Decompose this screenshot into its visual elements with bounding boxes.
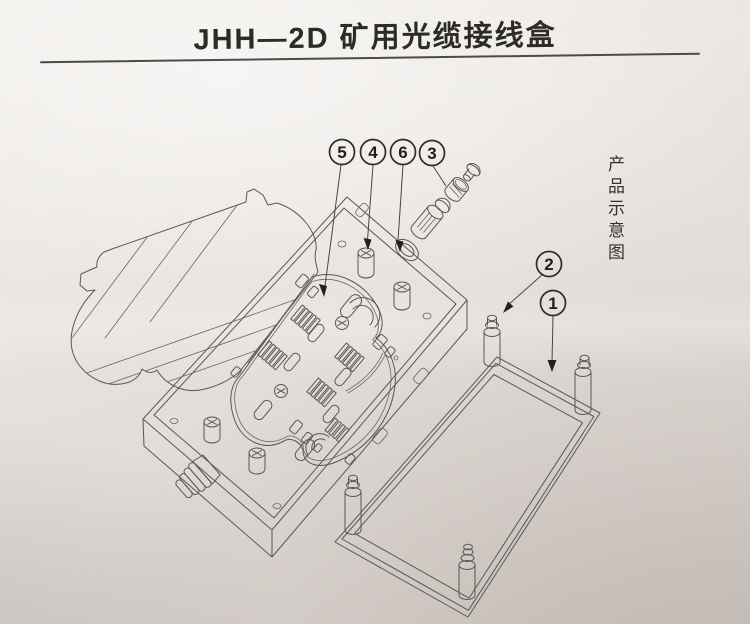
standoff-screw	[358, 248, 374, 278]
arrowhead	[548, 360, 557, 372]
frame-post-top-left	[484, 315, 500, 366]
splice-tray	[230, 273, 398, 465]
cable-gland-stub	[172, 453, 222, 502]
callout-5-label: 5	[337, 143, 346, 162]
frame-post-bottom-left	[345, 475, 361, 534]
callout-5: 5	[330, 140, 355, 165]
leader-2	[507, 274, 543, 306]
lid-cover	[39, 189, 318, 427]
callout-1-label: 1	[548, 294, 557, 313]
splice-holder-comb	[325, 418, 349, 442]
lid-grid	[39, 204, 297, 427]
callout-3-label: 3	[427, 144, 436, 163]
tray-screw	[336, 317, 349, 330]
box-base	[143, 197, 467, 557]
cable-gland-exploded	[392, 161, 483, 265]
mounting-frame	[335, 315, 600, 617]
frame-post-right	[575, 355, 591, 414]
callout-2: 2	[537, 252, 562, 277]
gland-body	[409, 202, 446, 241]
standoff-screw	[394, 282, 410, 310]
printed-diagram-page: JHH—2D 矿用光缆接线盒 产品示意图	[0, 0, 750, 624]
exploded-view-illustration: 5 4 6 3 2 1	[0, 0, 750, 624]
splice-holder-comb	[291, 305, 320, 334]
splice-holder-comb	[307, 378, 336, 407]
splice-holder-comb	[335, 343, 364, 372]
callout-6: 6	[391, 140, 416, 165]
leader-4	[368, 165, 374, 240]
frame-post-bottom-center	[459, 544, 475, 599]
standoff-screw	[249, 448, 265, 474]
standoff-screw	[204, 417, 220, 443]
gland-gasket	[433, 195, 453, 215]
callout-1: 1	[541, 291, 566, 316]
leader-1	[552, 316, 553, 363]
leader-6	[398, 165, 403, 241]
callout-6-label: 6	[398, 143, 407, 162]
leader-3	[433, 166, 446, 186]
arrowhead	[503, 302, 514, 314]
callout-4-label: 4	[368, 143, 378, 162]
callout-3: 3	[420, 141, 445, 166]
tray-screw	[275, 385, 288, 398]
callout-4: 4	[361, 140, 386, 165]
callouts: 5 4 6 3 2 1	[319, 140, 566, 373]
arrowhead	[319, 284, 327, 297]
gland-cap	[459, 161, 482, 185]
callout-2-label: 2	[544, 255, 553, 274]
